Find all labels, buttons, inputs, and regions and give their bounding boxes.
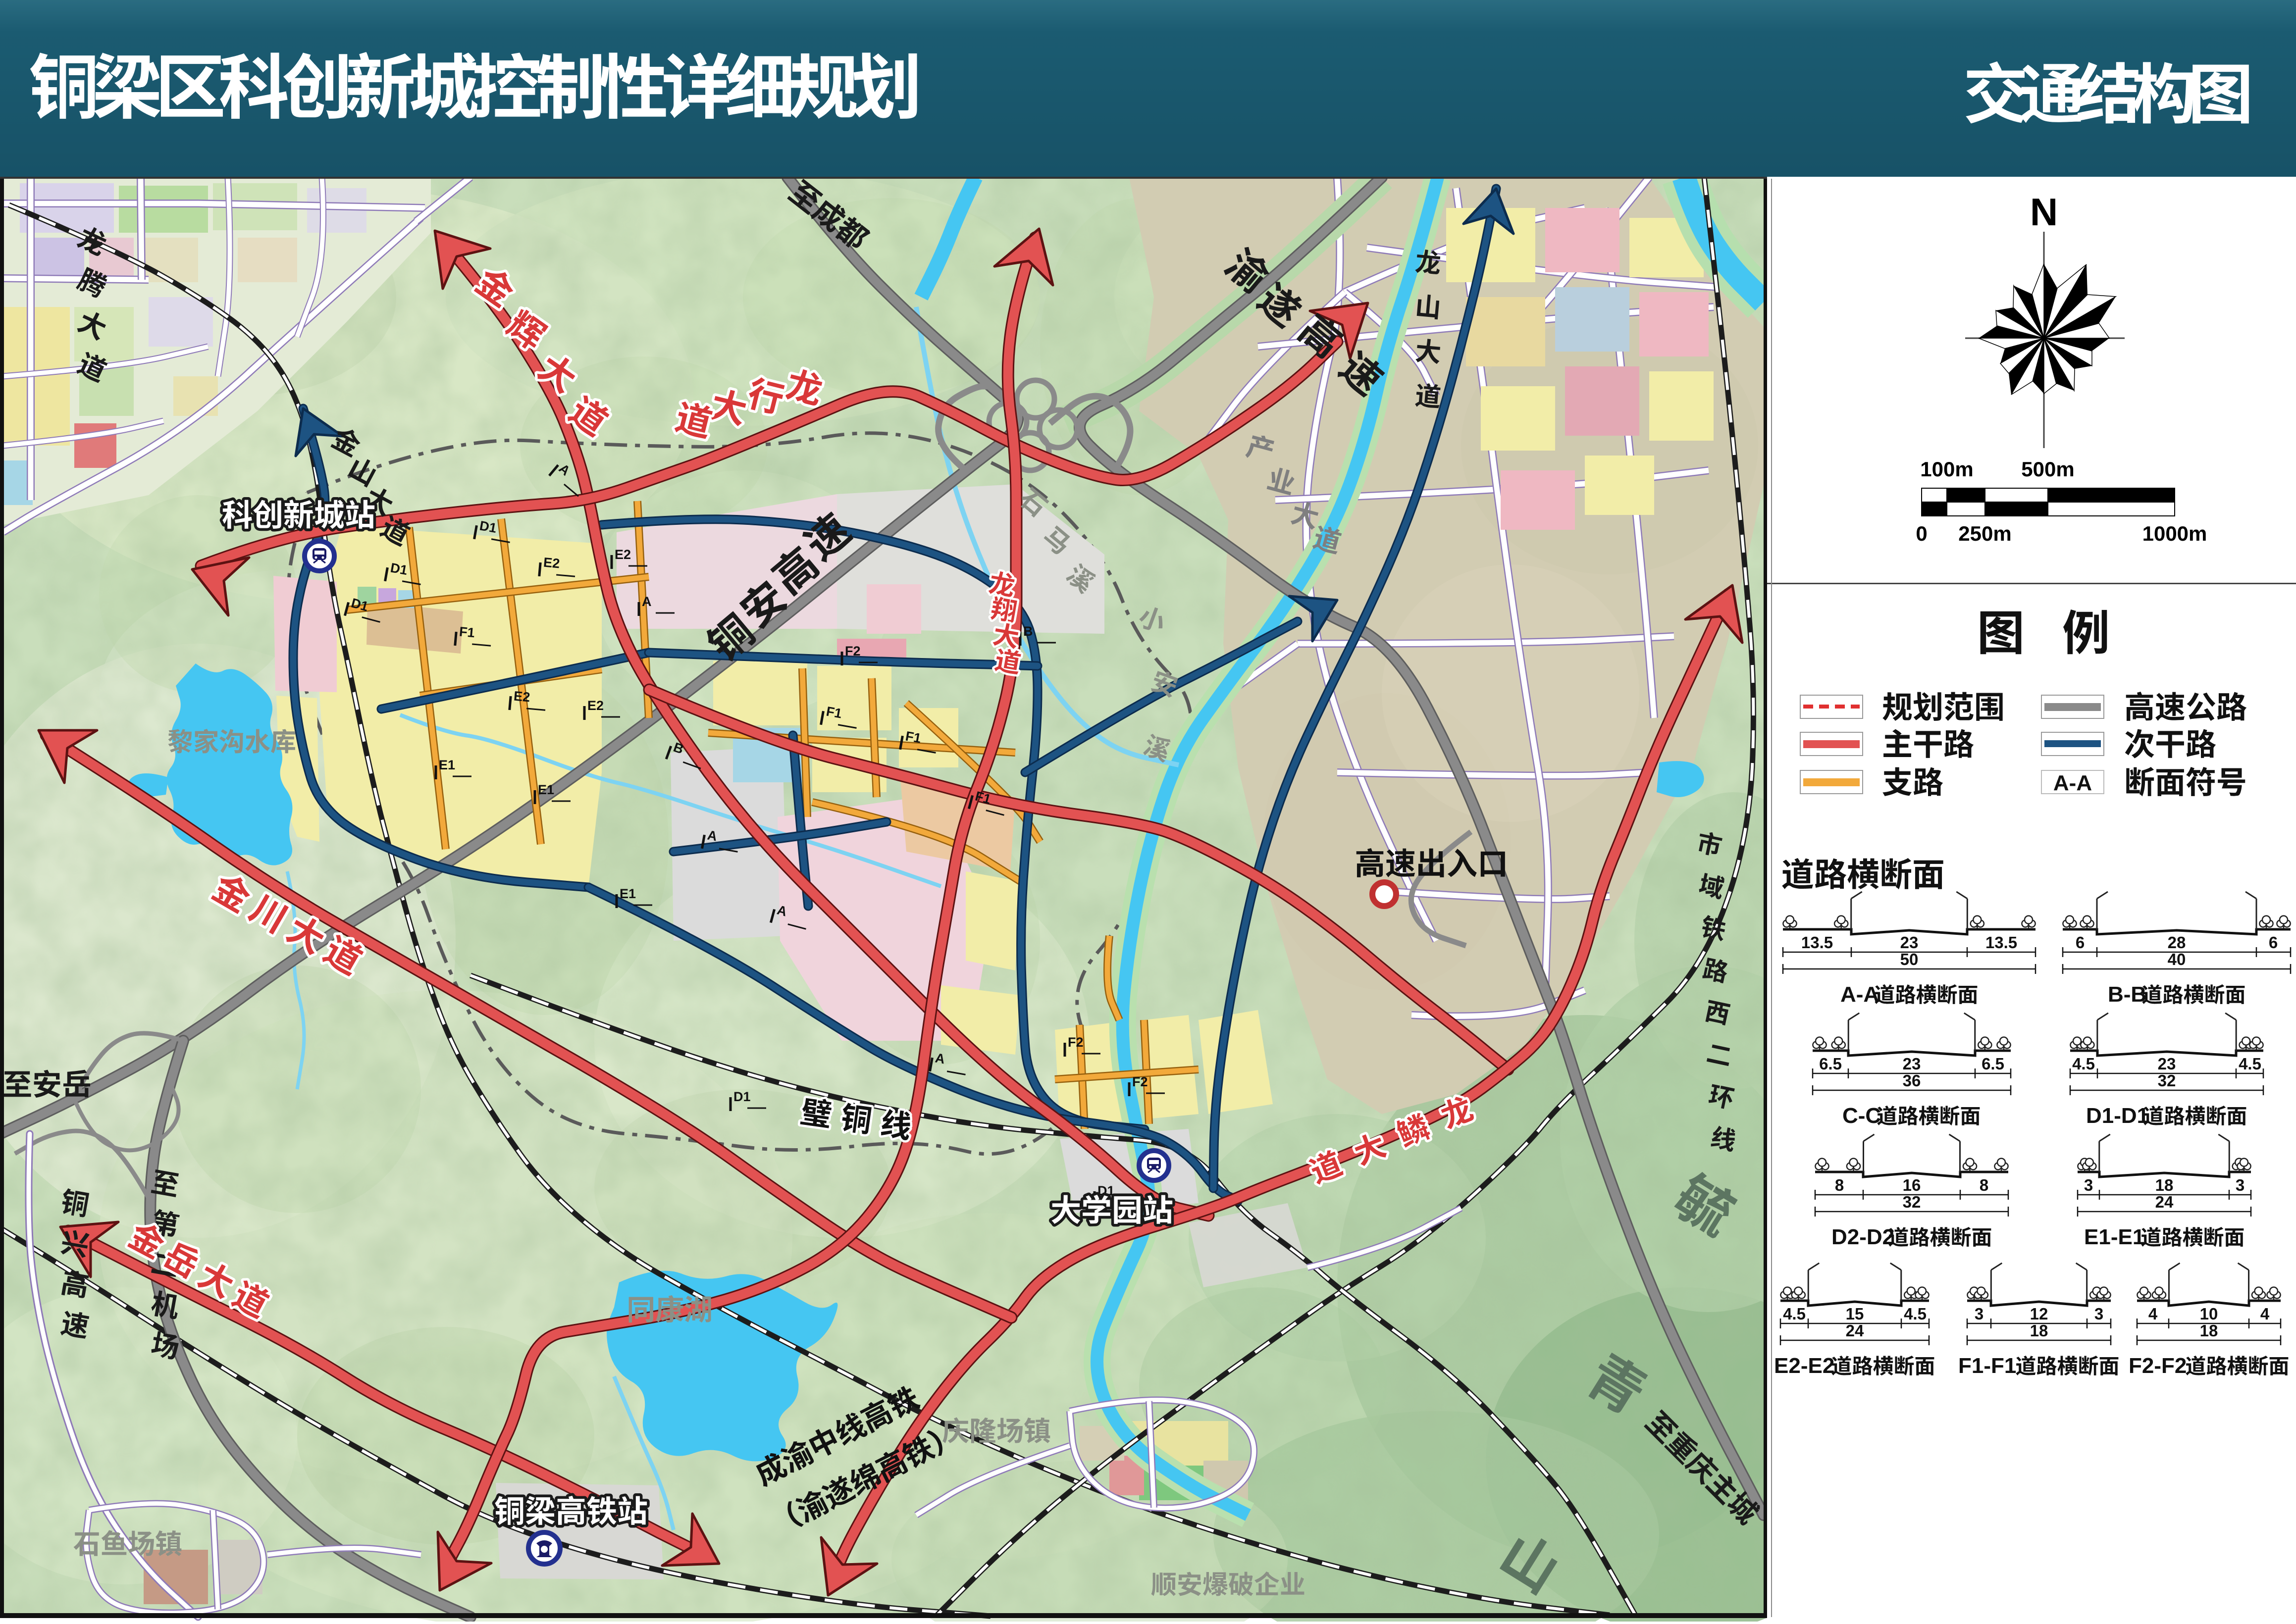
svg-text:E2: E2: [543, 555, 561, 571]
svg-text:F2: F2: [845, 644, 861, 659]
svg-text:6.5: 6.5: [1819, 1055, 1842, 1073]
svg-text:6.5: 6.5: [1982, 1055, 2004, 1073]
svg-text:D1: D1: [478, 518, 498, 536]
svg-text:N: N: [2030, 190, 2058, 234]
svg-text:6: 6: [2269, 933, 2278, 952]
svg-text:F1: F1: [459, 624, 475, 641]
svg-text:4.5: 4.5: [2072, 1055, 2095, 1073]
svg-text:E2: E2: [513, 689, 531, 705]
svg-text:D1-D1: D1-D1: [2086, 1104, 2149, 1128]
svg-text:E1: E1: [620, 886, 636, 901]
svg-text:F2-F2: F2-F2: [2129, 1354, 2187, 1378]
svg-text:4.5: 4.5: [1904, 1305, 1927, 1323]
svg-text:C-C: C-C: [1842, 1104, 1881, 1128]
svg-text:4.5: 4.5: [2239, 1055, 2261, 1073]
svg-text:D1: D1: [389, 560, 409, 578]
svg-text:12: 12: [2030, 1305, 2048, 1323]
svg-text:F1-F1: F1-F1: [1958, 1354, 2016, 1378]
svg-text:18: 18: [2030, 1321, 2048, 1340]
svg-text:23: 23: [2158, 1055, 2176, 1073]
svg-text:24: 24: [1846, 1321, 1864, 1340]
svg-text:32: 32: [1903, 1193, 1921, 1211]
svg-text:23: 23: [1900, 933, 1919, 952]
svg-text:23: 23: [1903, 1055, 1921, 1073]
svg-text:8: 8: [1980, 1176, 1988, 1194]
svg-text:A-A: A-A: [2053, 771, 2092, 795]
svg-text:50: 50: [1900, 950, 1919, 968]
svg-text:3: 3: [1975, 1305, 1983, 1323]
svg-text:F1: F1: [825, 704, 843, 721]
svg-text:F2: F2: [1132, 1074, 1148, 1089]
svg-text:D1: D1: [733, 1089, 751, 1104]
svg-text:E2: E2: [615, 547, 631, 562]
svg-text:A: A: [642, 594, 652, 609]
svg-text:F1: F1: [904, 728, 922, 746]
svg-text:13.5: 13.5: [1985, 933, 2017, 952]
svg-text:E1-E1: E1-E1: [2084, 1225, 2144, 1249]
svg-text:D2-D2: D2-D2: [1831, 1225, 1894, 1249]
svg-text:B-B: B-B: [2108, 982, 2146, 1007]
svg-text:10: 10: [2200, 1305, 2218, 1323]
svg-text:100m: 100m: [1920, 457, 1973, 481]
svg-text:E2: E2: [587, 698, 604, 713]
svg-text:3: 3: [2084, 1176, 2093, 1194]
svg-text:24: 24: [2155, 1193, 2174, 1211]
svg-text:3: 3: [2236, 1176, 2244, 1194]
svg-text:B: B: [1023, 624, 1033, 639]
svg-text:E1: E1: [538, 782, 554, 797]
svg-text:15: 15: [1846, 1305, 1864, 1323]
svg-text:3: 3: [2094, 1305, 2103, 1323]
svg-text:A-A: A-A: [1840, 982, 1879, 1007]
svg-text:E2-E2: E2-E2: [1774, 1354, 1834, 1378]
svg-text:36: 36: [1903, 1071, 1921, 1090]
svg-text:4: 4: [2148, 1305, 2158, 1323]
svg-text:16: 16: [1903, 1176, 1921, 1194]
svg-text:250m: 250m: [1958, 522, 2011, 545]
svg-text:28: 28: [2168, 933, 2186, 952]
svg-text:8: 8: [1835, 1176, 1844, 1194]
svg-text:6: 6: [2076, 933, 2085, 952]
svg-text:4: 4: [2260, 1305, 2270, 1323]
svg-text:4.5: 4.5: [1783, 1305, 1806, 1323]
svg-text:13.5: 13.5: [1801, 933, 1833, 952]
svg-text:E1: E1: [439, 758, 455, 772]
svg-text:18: 18: [2200, 1321, 2218, 1340]
svg-text:1000m: 1000m: [2142, 522, 2207, 545]
svg-text:500m: 500m: [2021, 457, 2074, 481]
svg-text:18: 18: [2155, 1176, 2174, 1194]
svg-text:32: 32: [2158, 1071, 2176, 1090]
svg-text:40: 40: [2168, 950, 2186, 968]
svg-text:F2: F2: [1068, 1035, 1084, 1050]
svg-text:0: 0: [1916, 522, 1927, 545]
